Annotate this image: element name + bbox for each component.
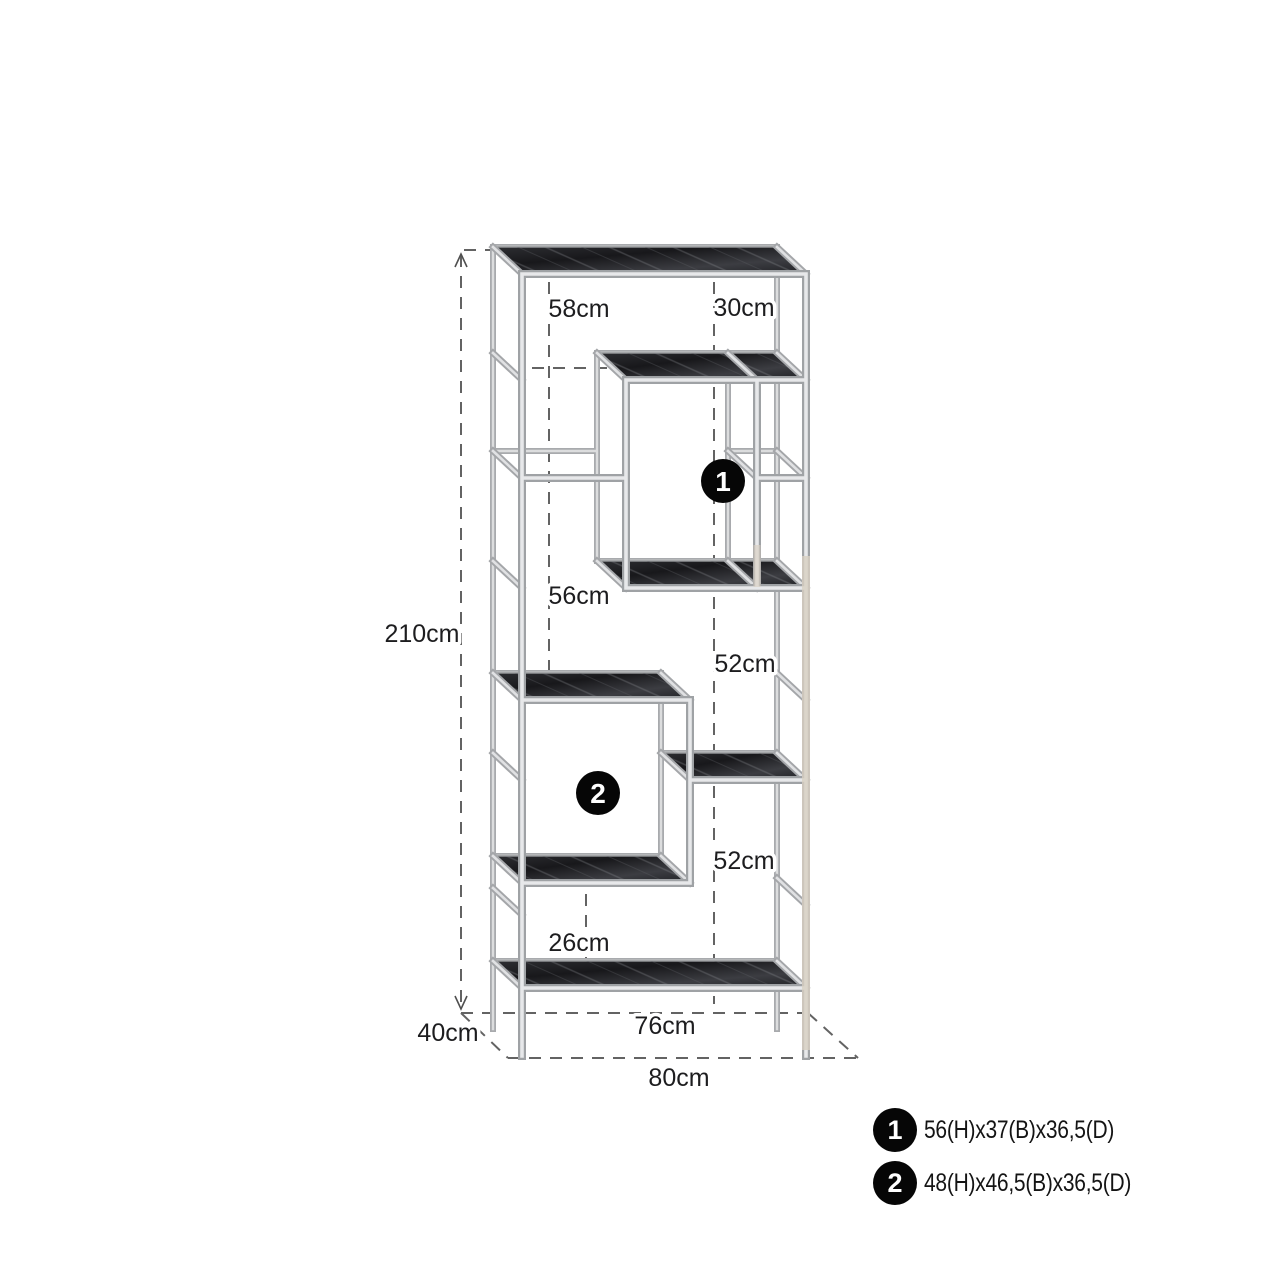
- dimension-label-top-left: 58cm: [548, 295, 609, 323]
- dimension-label-inner-width: 76cm: [634, 1012, 695, 1040]
- dimension-label-bottom-gap: 26cm: [548, 929, 609, 957]
- depth-line-right: [808, 1013, 858, 1058]
- marker-2-number: 2: [590, 778, 606, 809]
- dimension-label-height: 210cm: [384, 620, 459, 648]
- dimension-label-top-right: 30cm: [713, 294, 774, 322]
- marker-1-number: 1: [715, 466, 731, 497]
- legend-size-1: 56(H)x37(B)x36,5(D): [924, 1116, 1114, 1145]
- legend-item-2: 2 48(H)x46,5(B)x36,5(D): [873, 1161, 1171, 1205]
- legend-size-2: 48(H)x46,5(B)x36,5(D): [924, 1169, 1131, 1198]
- legend-item-1: 1 56(H)x37(B)x36,5(D): [873, 1108, 1171, 1152]
- legend-badge-2: 2: [873, 1161, 917, 1205]
- dimension-label-depth: 40cm: [417, 1019, 478, 1047]
- dimension-label-right-lower: 52cm: [713, 847, 774, 875]
- marker-1: 1: [701, 459, 745, 503]
- legend: 1 56(H)x37(B)x36,5(D) 2 48(H)x46,5(B)x36…: [873, 1108, 1171, 1214]
- dimension-label-mid-left: 56cm: [548, 582, 609, 610]
- shelf-slabs: [493, 247, 806, 988]
- legend-badge-1: 1: [873, 1108, 917, 1152]
- leg-reflection-small: [754, 545, 761, 587]
- shelving-unit-drawing: 210cm 58cm 30cm 56cm 52cm 52cm 26cm 76cm…: [0, 0, 1280, 1280]
- dimension-label-right-upper: 52cm: [714, 650, 775, 678]
- product-dimension-diagram: 210cm 58cm 30cm 56cm 52cm 52cm 26cm 76cm…: [0, 0, 1280, 1280]
- marker-2: 2: [576, 771, 620, 815]
- leg-reflection: [802, 556, 810, 1050]
- dimension-label-outer-width: 80cm: [648, 1064, 709, 1092]
